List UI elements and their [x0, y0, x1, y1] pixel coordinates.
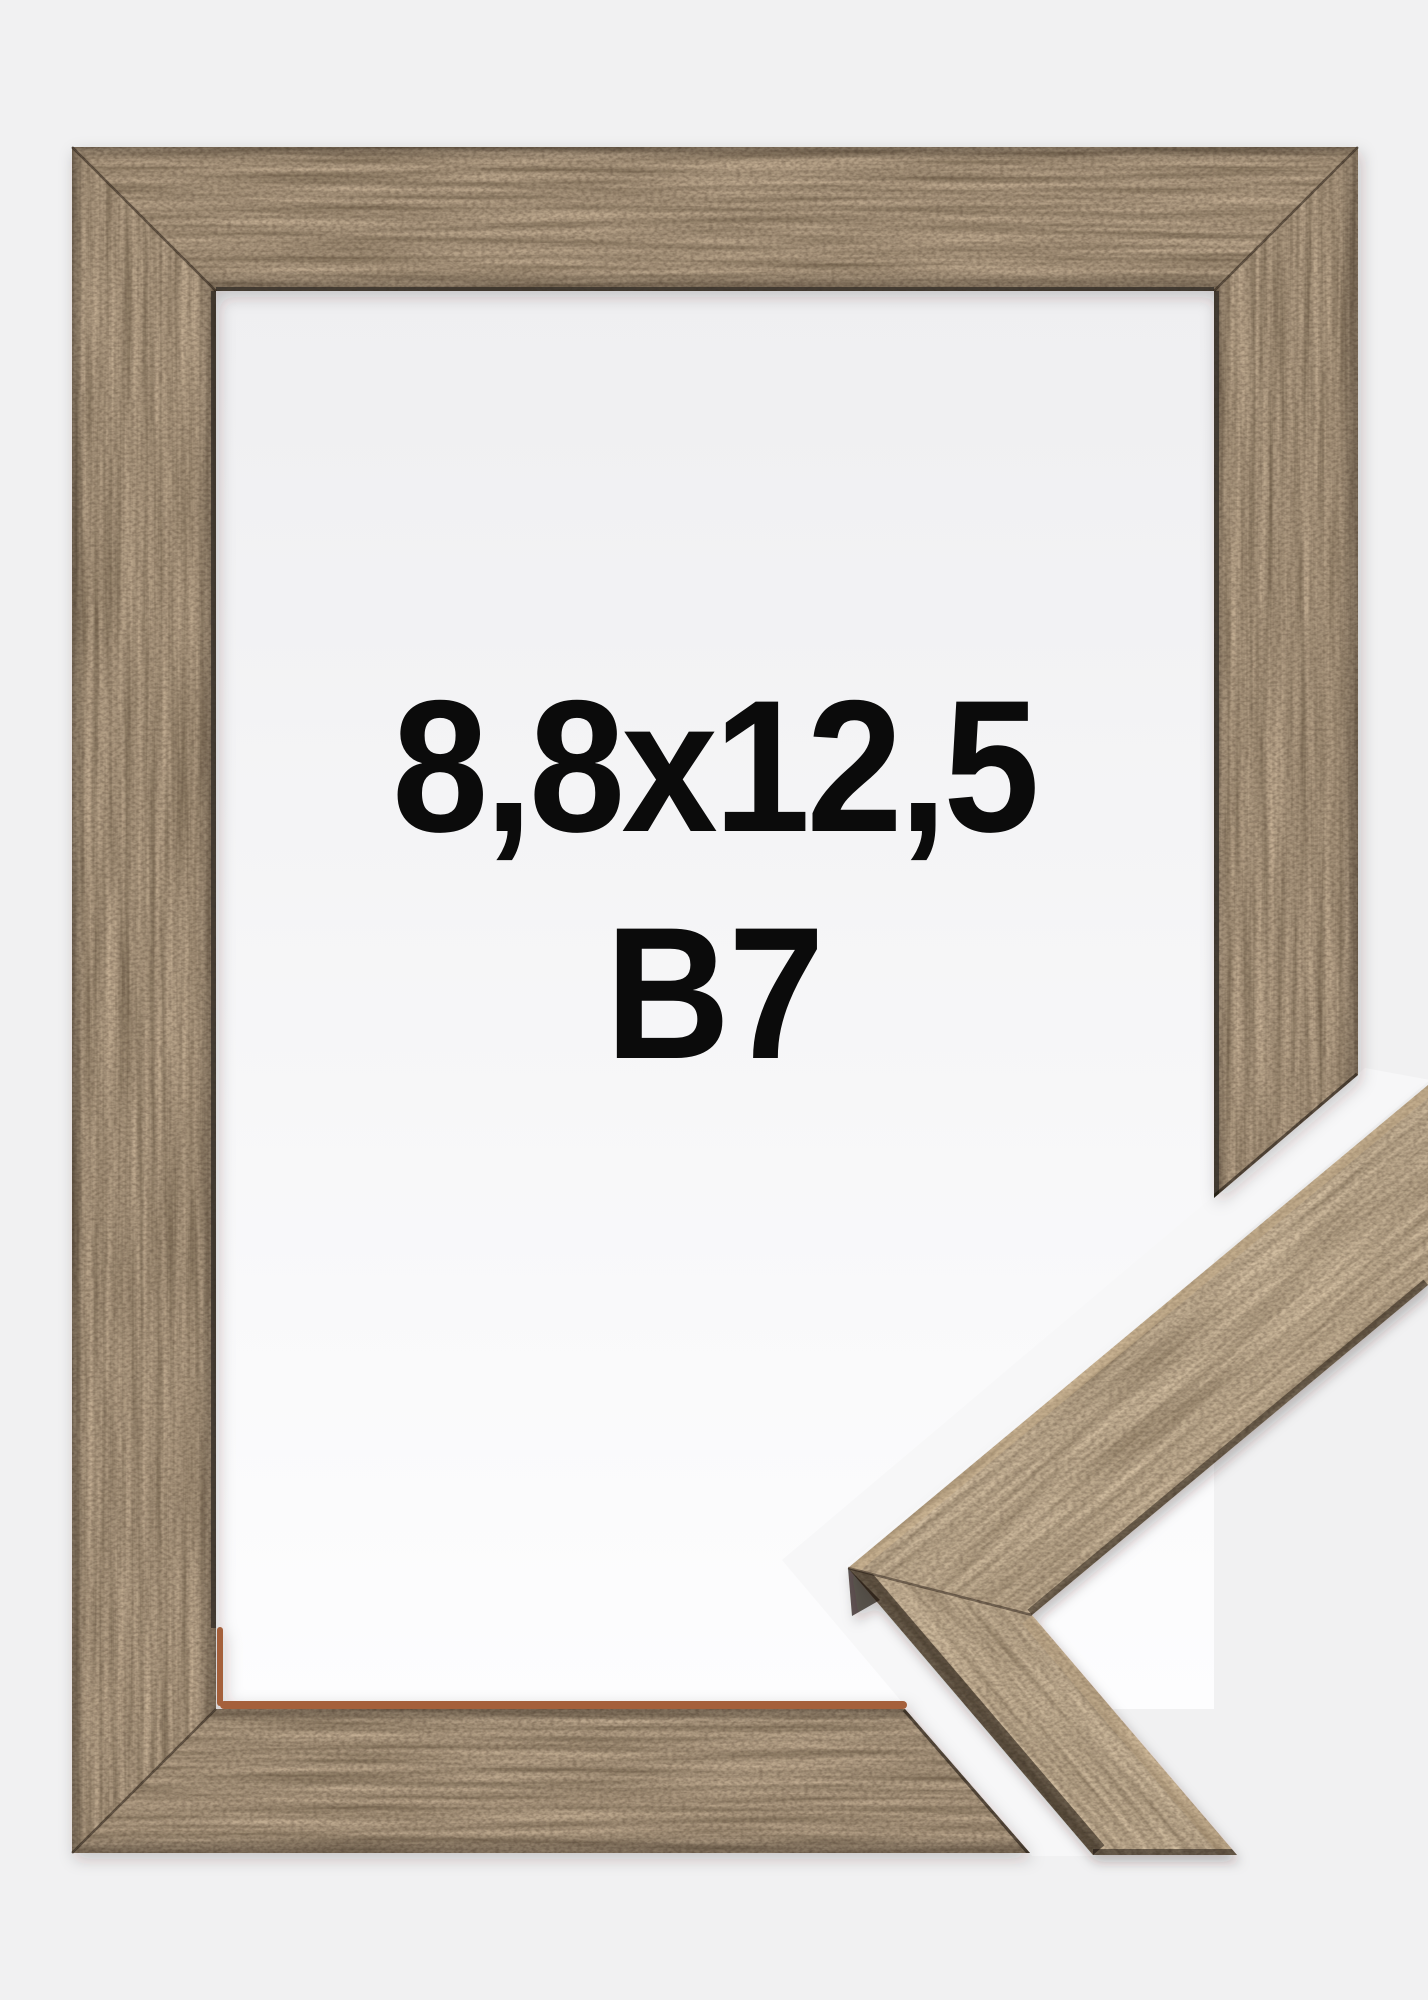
frame-left-bar: [60, 135, 230, 1875]
paper-format-label: B7: [605, 899, 822, 1087]
frame-bottom-bar: [60, 1695, 1050, 1870]
frame-right-bar: [1200, 135, 1372, 1215]
frame-size-label: 8,8x12,5: [392, 672, 1036, 860]
frame-top-bar: [60, 135, 1380, 305]
product-photo: 8,8x12,5 B7: [0, 0, 1428, 2000]
